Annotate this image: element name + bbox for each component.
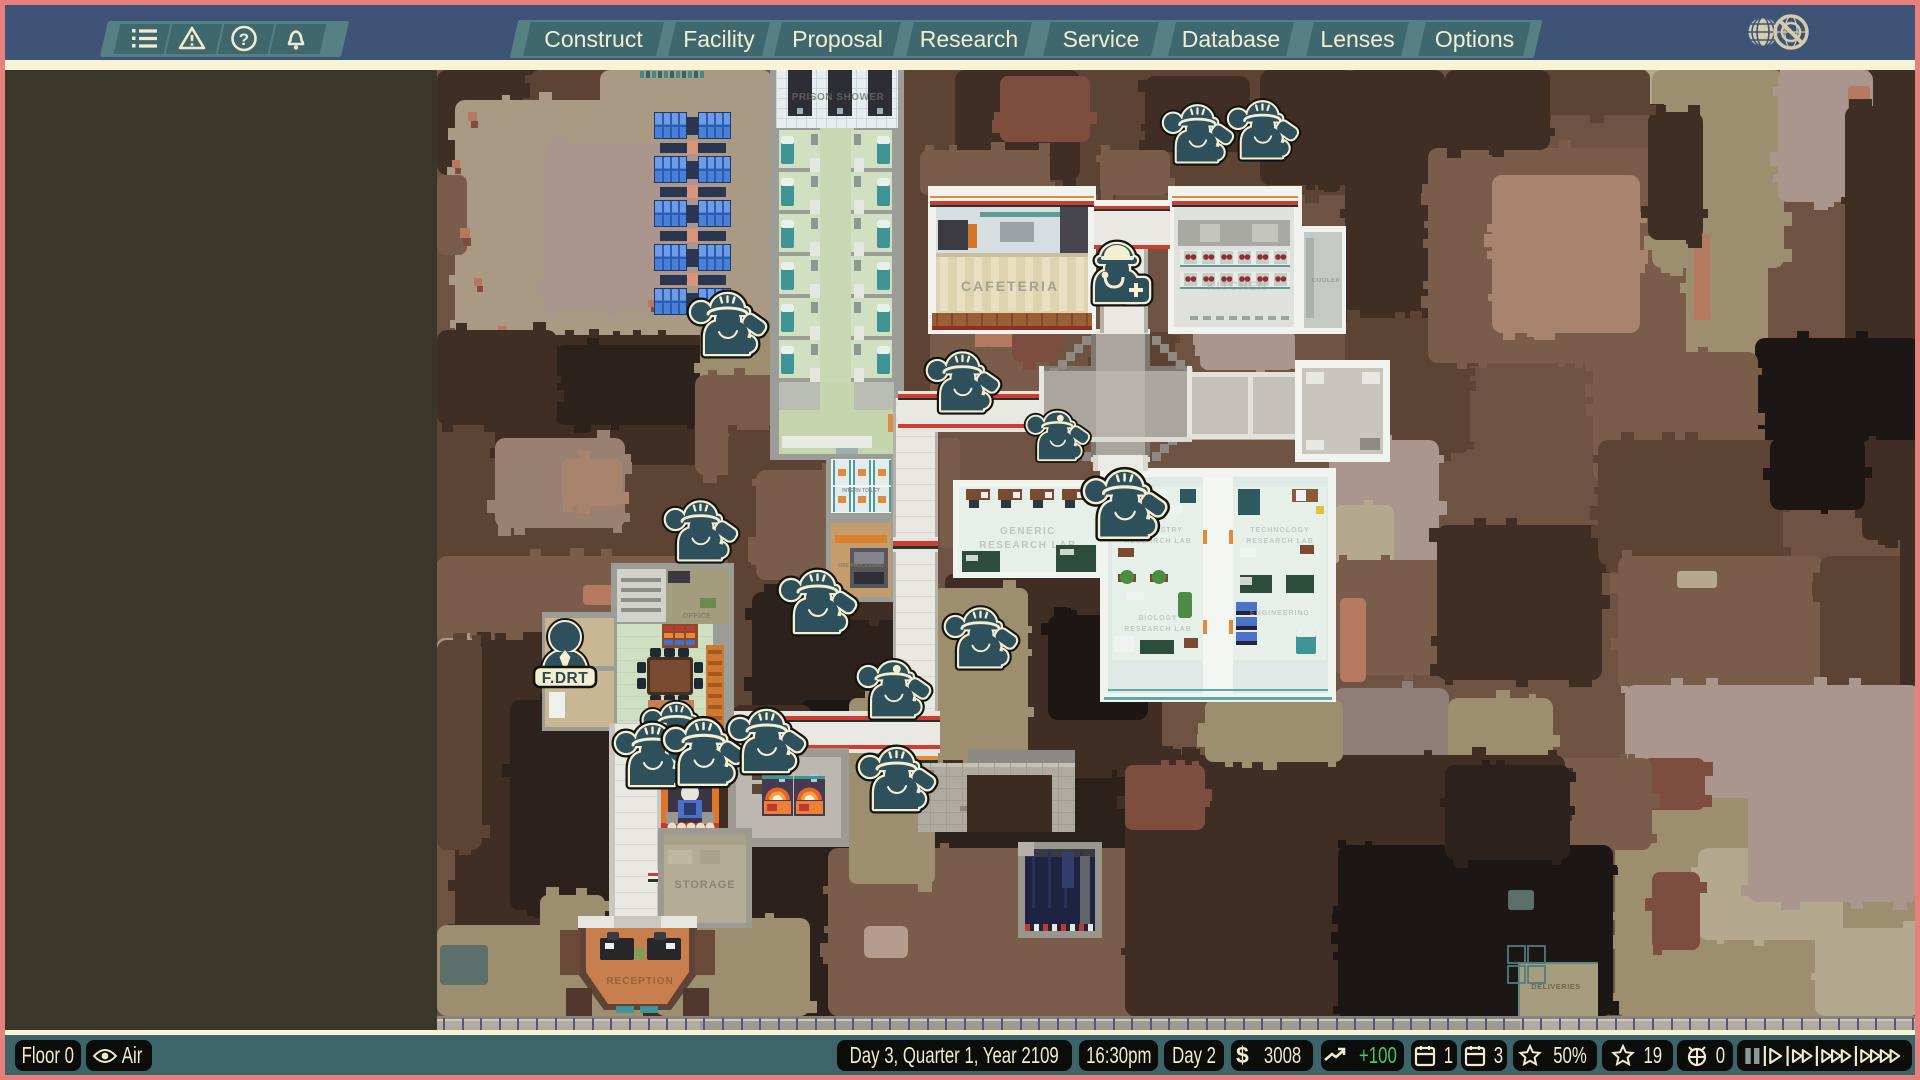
svg-text:PRISON SHOWER: PRISON SHOWER <box>792 92 885 103</box>
svg-text:?: ? <box>239 30 249 49</box>
svg-text:STORAGE: STORAGE <box>674 879 735 891</box>
svg-text:COOLER: COOLER <box>1312 278 1341 284</box>
svg-text:RESEARCH LAB: RESEARCH LAB <box>1124 626 1192 633</box>
svg-text:OFFICE: OFFICE <box>683 613 712 620</box>
svg-text:CAFETERIA: CAFETERIA <box>961 278 1059 294</box>
svg-text:RESEARCH LAB: RESEARCH LAB <box>1246 538 1314 545</box>
svg-text:RECEPTION: RECEPTION <box>606 976 673 987</box>
svg-text:ENGINEERING: ENGINEERING <box>1250 610 1310 617</box>
svg-text:ORE PROCESSING: ORE PROCESSING <box>838 563 884 569</box>
svg-text:KITCHEN: KITCHEN <box>1207 279 1267 293</box>
svg-text:GENERIC: GENERIC <box>1000 526 1056 537</box>
svg-text:INTERN TOILET: INTERN TOILET <box>842 488 880 494</box>
svg-text:TECHNOLOGY: TECHNOLOGY <box>1250 527 1309 534</box>
svg-text:BIOLOGY: BIOLOGY <box>1138 615 1177 622</box>
svg-text:F.DRT: F.DRT <box>542 670 588 687</box>
